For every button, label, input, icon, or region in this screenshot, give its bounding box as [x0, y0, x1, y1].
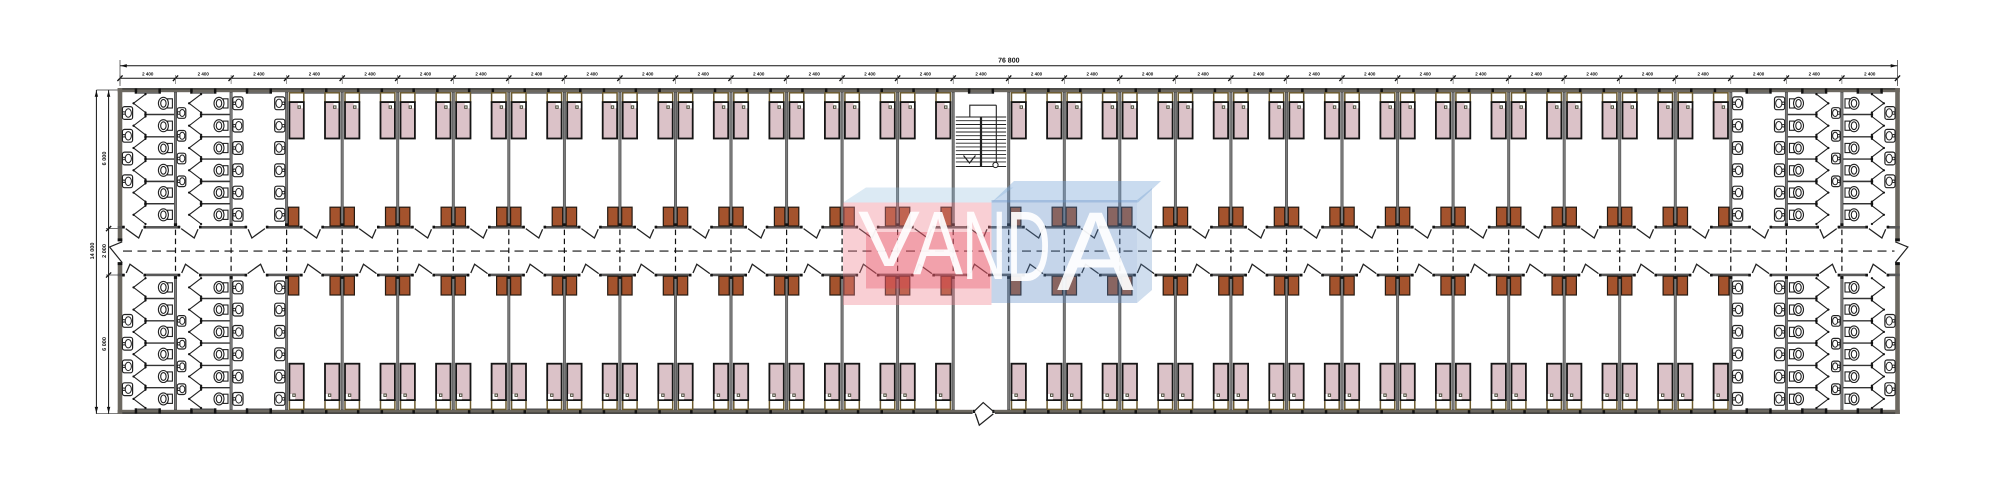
svg-text:2 400: 2 400: [1364, 72, 1376, 77]
svg-text:2 400: 2 400: [1197, 72, 1209, 77]
svg-text:2 400: 2 400: [364, 72, 376, 77]
svg-text:2 400: 2 400: [1253, 72, 1265, 77]
svg-text:2 400: 2 400: [809, 72, 821, 77]
svg-text:2 400: 2 400: [920, 72, 932, 77]
svg-text:2 400: 2 400: [975, 72, 987, 77]
svg-text:2 400: 2 400: [1753, 72, 1765, 77]
svg-text:2 400: 2 400: [1142, 72, 1154, 77]
svg-text:2 400: 2 400: [1586, 72, 1598, 77]
svg-text:2 400: 2 400: [1531, 72, 1543, 77]
svg-text:2 400: 2 400: [198, 72, 210, 77]
svg-text:2 400: 2 400: [1086, 72, 1098, 77]
svg-text:2 400: 2 400: [1031, 72, 1043, 77]
svg-text:76 800: 76 800: [998, 58, 1020, 65]
svg-text:2 400: 2 400: [1475, 72, 1487, 77]
svg-text:6 000: 6 000: [102, 152, 108, 166]
svg-text:2 400: 2 400: [1420, 72, 1432, 77]
svg-text:2 400: 2 400: [253, 72, 265, 77]
svg-text:N: N: [962, 191, 1007, 300]
svg-text:2 400: 2 400: [642, 72, 654, 77]
svg-text:2 400: 2 400: [698, 72, 710, 77]
svg-text:2 400: 2 400: [1309, 72, 1321, 77]
svg-text:D: D: [1006, 191, 1051, 303]
svg-text:14 000: 14 000: [90, 243, 96, 260]
svg-text:2 400: 2 400: [475, 72, 487, 77]
svg-text:2 000: 2 000: [102, 244, 108, 258]
svg-text:2 400: 2 400: [531, 72, 543, 77]
svg-text:6 000: 6 000: [102, 337, 108, 351]
svg-text:2 400: 2 400: [142, 72, 154, 77]
svg-text:2 400: 2 400: [586, 72, 598, 77]
svg-text:A: A: [1057, 189, 1134, 314]
svg-text:2 400: 2 400: [309, 72, 321, 77]
svg-text:V: V: [858, 194, 920, 283]
svg-text:2 400: 2 400: [864, 72, 876, 77]
svg-text:A: A: [913, 194, 963, 294]
svg-text:2 400: 2 400: [1864, 72, 1876, 77]
svg-text:2 400: 2 400: [1809, 72, 1821, 77]
svg-text:2 400: 2 400: [753, 72, 765, 77]
svg-text:2 400: 2 400: [1697, 72, 1709, 77]
svg-text:2 400: 2 400: [420, 72, 432, 77]
svg-text:2 400: 2 400: [1642, 72, 1654, 77]
